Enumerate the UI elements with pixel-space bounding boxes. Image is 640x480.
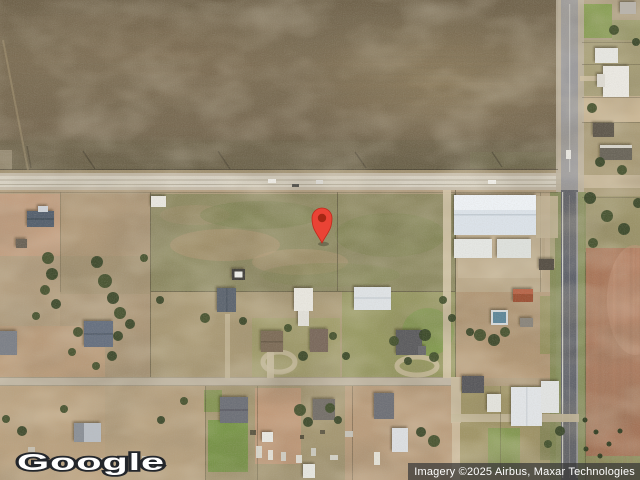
map-viewport: Google Imagery ©2025 Airbus, Maxar Techn… [0, 0, 640, 480]
attribution-bar: Imagery ©2025 Airbus, Maxar Technologies [408, 463, 640, 480]
google-logo[interactable]: Google [14, 447, 184, 477]
pin-inner-dot [318, 214, 326, 222]
google-logo-text[interactable]: Google [17, 449, 165, 475]
attribution-text: Imagery ©2025 Airbus, Maxar Technologies [414, 466, 635, 478]
satellite-imagery[interactable] [0, 0, 640, 480]
pin-shadow [318, 242, 329, 246]
